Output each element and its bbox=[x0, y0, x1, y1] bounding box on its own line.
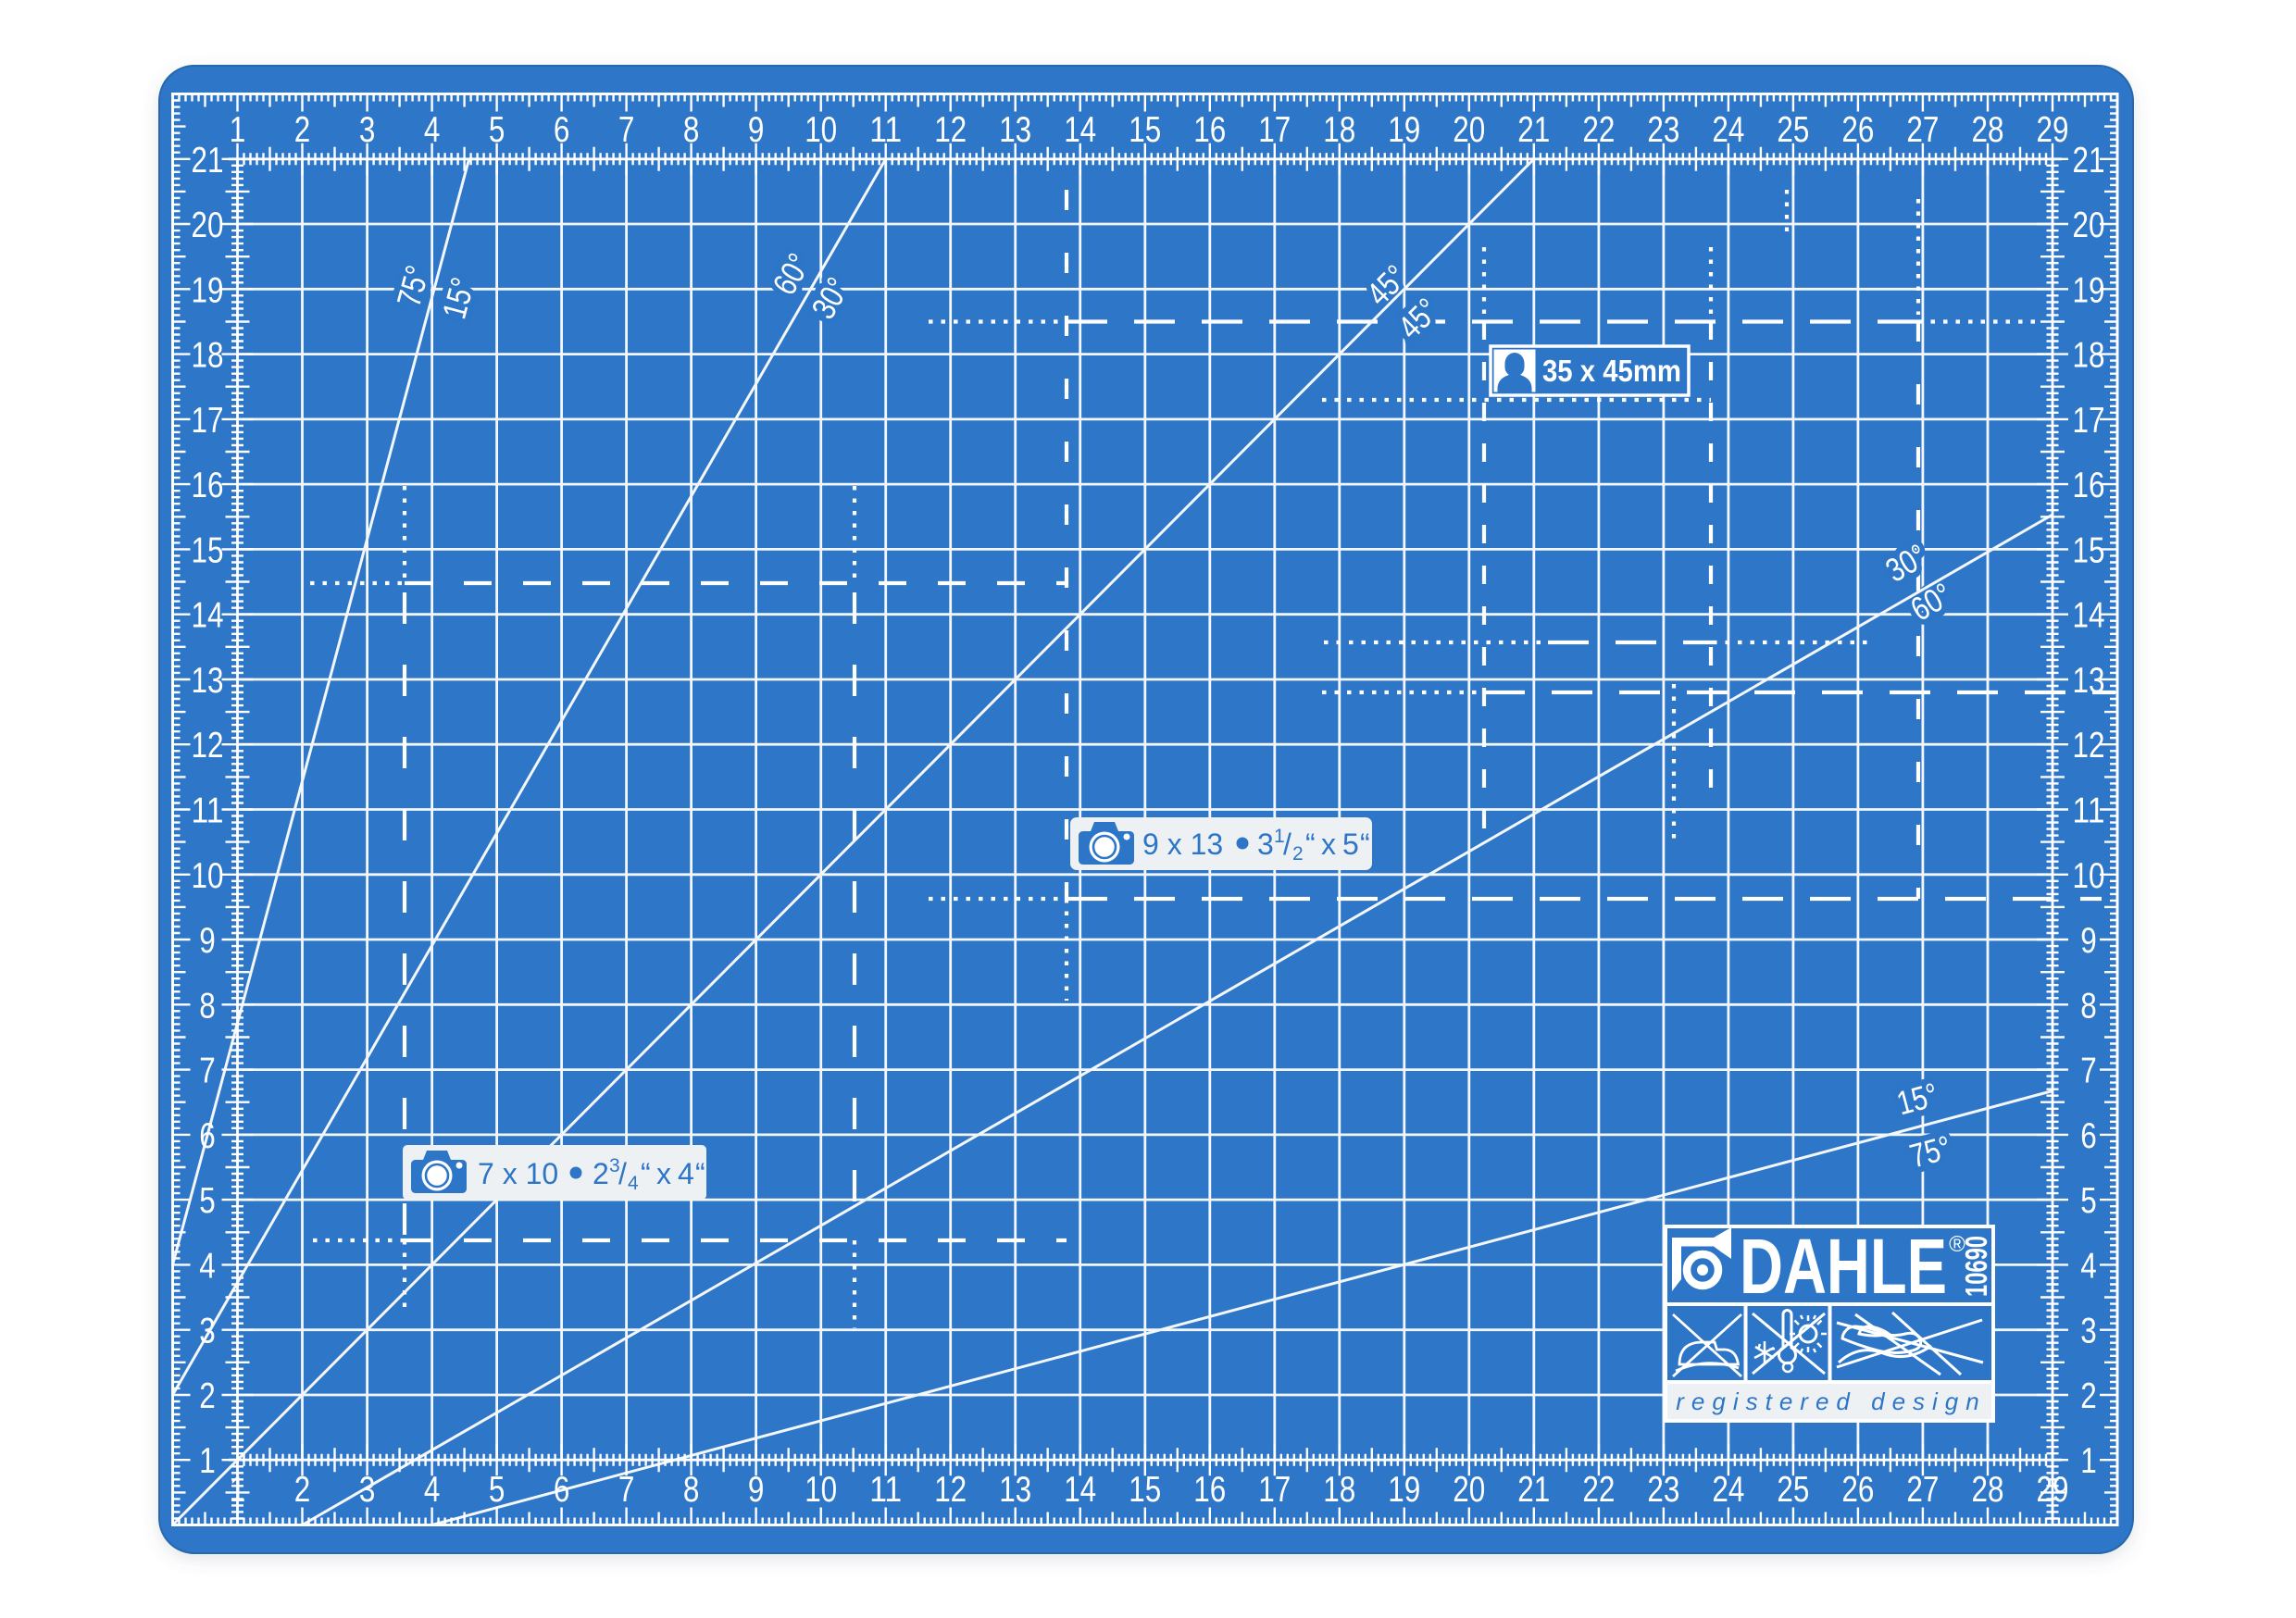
svg-text:20: 20 bbox=[1453, 110, 1485, 150]
svg-text:14: 14 bbox=[1064, 1470, 1096, 1510]
svg-text:12: 12 bbox=[192, 726, 224, 765]
svg-text:2: 2 bbox=[294, 1470, 311, 1510]
svg-text:4: 4 bbox=[2080, 1246, 2097, 1286]
svg-text:23: 23 bbox=[1647, 110, 1679, 150]
svg-text:8: 8 bbox=[199, 986, 216, 1026]
svg-text:21: 21 bbox=[2073, 141, 2105, 180]
svg-text:5: 5 bbox=[489, 110, 505, 150]
svg-text:19: 19 bbox=[192, 270, 224, 310]
svg-text:6: 6 bbox=[199, 1116, 216, 1156]
svg-text:6: 6 bbox=[2080, 1116, 2097, 1156]
svg-text:3: 3 bbox=[359, 110, 376, 150]
svg-text:14: 14 bbox=[192, 596, 224, 636]
svg-text:9 x 13: 9 x 13 bbox=[1142, 828, 1223, 861]
svg-text:13: 13 bbox=[999, 1470, 1031, 1510]
svg-text:3: 3 bbox=[359, 1470, 376, 1510]
svg-text:13: 13 bbox=[2073, 661, 2105, 701]
svg-text:2: 2 bbox=[294, 110, 311, 150]
svg-text:17: 17 bbox=[1258, 1470, 1291, 1510]
svg-text:17: 17 bbox=[1258, 110, 1291, 150]
svg-text:35 x 45mm: 35 x 45mm bbox=[1542, 354, 1681, 388]
svg-text:11: 11 bbox=[192, 791, 224, 831]
svg-text:28: 28 bbox=[1972, 1470, 2004, 1510]
svg-text:26: 26 bbox=[1841, 1470, 1874, 1510]
svg-text:2: 2 bbox=[199, 1376, 216, 1416]
svg-text:27: 27 bbox=[1906, 1470, 1939, 1510]
svg-text:16: 16 bbox=[2073, 466, 2105, 505]
svg-text:16: 16 bbox=[1193, 1470, 1226, 1510]
svg-text:7 x 10: 7 x 10 bbox=[478, 1157, 558, 1190]
svg-text:12: 12 bbox=[934, 1470, 967, 1510]
svg-text:11: 11 bbox=[2073, 791, 2105, 831]
svg-text:8: 8 bbox=[2080, 986, 2097, 1026]
svg-text:16: 16 bbox=[192, 466, 224, 505]
svg-text:10: 10 bbox=[192, 856, 224, 896]
svg-text:11: 11 bbox=[869, 1470, 902, 1510]
svg-text:15: 15 bbox=[1129, 110, 1161, 150]
svg-text:26: 26 bbox=[1841, 110, 1874, 150]
svg-text:19: 19 bbox=[1388, 110, 1420, 150]
svg-text:28: 28 bbox=[1972, 110, 2004, 150]
svg-text:18: 18 bbox=[2073, 336, 2105, 376]
svg-text:23: 23 bbox=[1647, 1470, 1679, 1510]
svg-text:8: 8 bbox=[683, 110, 700, 150]
svg-text:7: 7 bbox=[2080, 1052, 2097, 1091]
svg-text:8: 8 bbox=[683, 1470, 700, 1510]
svg-text:20: 20 bbox=[1453, 1470, 1485, 1510]
svg-text:20: 20 bbox=[192, 205, 224, 245]
svg-text:29: 29 bbox=[2037, 1470, 2069, 1510]
svg-text:9: 9 bbox=[199, 921, 216, 961]
svg-text:registered design: registered design bbox=[1676, 1388, 1986, 1415]
svg-text:18: 18 bbox=[1323, 110, 1355, 150]
svg-text:22: 22 bbox=[1582, 110, 1615, 150]
svg-text:1: 1 bbox=[199, 1441, 216, 1481]
svg-text:7: 7 bbox=[199, 1052, 216, 1091]
svg-text:27: 27 bbox=[1906, 110, 1939, 150]
svg-text:10690: 10690 bbox=[1959, 1236, 1993, 1297]
svg-text:18: 18 bbox=[192, 336, 224, 376]
svg-text:14: 14 bbox=[2073, 596, 2105, 636]
svg-text:6: 6 bbox=[554, 1470, 570, 1510]
svg-text:9: 9 bbox=[2080, 921, 2097, 961]
svg-text:24: 24 bbox=[1712, 110, 1744, 150]
svg-text:17: 17 bbox=[192, 401, 224, 441]
svg-text:21: 21 bbox=[1517, 1470, 1550, 1510]
svg-text:19: 19 bbox=[2073, 270, 2105, 310]
svg-text:25: 25 bbox=[1777, 110, 1809, 150]
svg-text:15: 15 bbox=[192, 530, 224, 570]
svg-text:4: 4 bbox=[424, 110, 441, 150]
svg-text:2: 2 bbox=[2080, 1376, 2097, 1416]
svg-text:1: 1 bbox=[2080, 1441, 2097, 1481]
svg-text:4: 4 bbox=[424, 1470, 441, 1510]
svg-text:10: 10 bbox=[2073, 856, 2105, 896]
svg-text:9: 9 bbox=[748, 1470, 765, 1510]
svg-text:13: 13 bbox=[999, 110, 1031, 150]
svg-text:10: 10 bbox=[805, 1470, 837, 1510]
svg-text:5: 5 bbox=[2080, 1181, 2097, 1221]
svg-text:7: 7 bbox=[618, 1470, 635, 1510]
svg-text:12: 12 bbox=[934, 110, 967, 150]
svg-text:16: 16 bbox=[1193, 110, 1226, 150]
svg-text:4: 4 bbox=[199, 1246, 216, 1286]
svg-text:5: 5 bbox=[199, 1181, 216, 1221]
svg-text:19: 19 bbox=[1388, 1470, 1420, 1510]
svg-text:10: 10 bbox=[805, 110, 837, 150]
svg-text:21: 21 bbox=[1517, 110, 1550, 150]
svg-text:3: 3 bbox=[2080, 1312, 2097, 1351]
svg-text:7: 7 bbox=[618, 110, 635, 150]
svg-text:1: 1 bbox=[230, 110, 246, 150]
svg-text:18: 18 bbox=[1323, 1470, 1355, 1510]
svg-text:6: 6 bbox=[554, 110, 570, 150]
svg-text:13: 13 bbox=[192, 661, 224, 701]
svg-text:DAHLE: DAHLE bbox=[1740, 1223, 1947, 1310]
svg-text:22: 22 bbox=[1582, 1470, 1615, 1510]
svg-text:29: 29 bbox=[2037, 110, 2069, 150]
svg-text:14: 14 bbox=[1064, 110, 1096, 150]
svg-text:9: 9 bbox=[748, 110, 765, 150]
svg-text:11: 11 bbox=[869, 110, 902, 150]
svg-text:20: 20 bbox=[2073, 205, 2105, 245]
svg-text:1: 1 bbox=[230, 1470, 246, 1510]
svg-text:25: 25 bbox=[1777, 1470, 1809, 1510]
svg-text:21: 21 bbox=[192, 141, 224, 180]
svg-text:5: 5 bbox=[489, 1470, 505, 1510]
svg-text:24: 24 bbox=[1712, 1470, 1744, 1510]
svg-text:12: 12 bbox=[2073, 726, 2105, 765]
svg-text:17: 17 bbox=[2073, 401, 2105, 441]
svg-text:15: 15 bbox=[2073, 530, 2105, 570]
svg-text:3: 3 bbox=[199, 1312, 216, 1351]
svg-text:15: 15 bbox=[1129, 1470, 1161, 1510]
